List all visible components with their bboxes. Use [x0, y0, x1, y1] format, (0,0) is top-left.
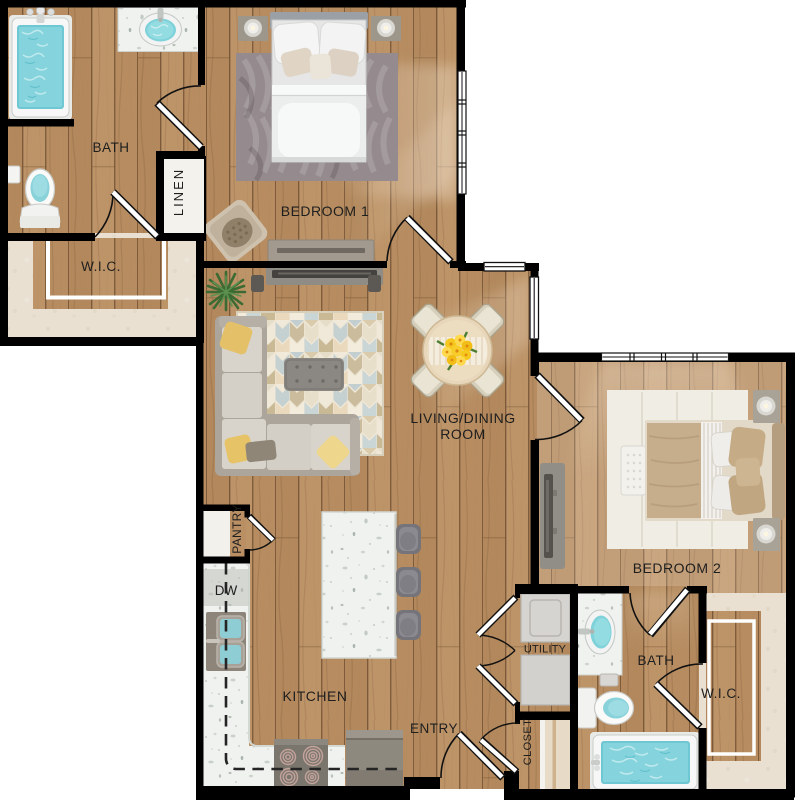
- svg-text:UTILITY: UTILITY: [524, 644, 567, 656]
- svg-text:ENTRY: ENTRY: [410, 721, 458, 736]
- svg-text:BEDROOM 1: BEDROOM 1: [281, 203, 370, 219]
- svg-text:W.I.C.: W.I.C.: [701, 686, 741, 701]
- svg-text:DW: DW: [215, 583, 238, 598]
- svg-text:LINEN: LINEN: [171, 168, 186, 216]
- svg-text:LIVING/DINING: LIVING/DINING: [410, 410, 515, 426]
- svg-text:KITCHEN: KITCHEN: [283, 688, 348, 704]
- svg-text:BATH: BATH: [92, 140, 129, 155]
- svg-text:BATH: BATH: [637, 653, 674, 668]
- svg-text:BEDROOM 2: BEDROOM 2: [633, 560, 722, 576]
- svg-text:ROOM: ROOM: [440, 426, 486, 442]
- svg-text:PANTRY: PANTRY: [230, 504, 244, 553]
- svg-text:CLOSET: CLOSET: [522, 719, 534, 765]
- svg-text:W.I.C.: W.I.C.: [81, 259, 121, 274]
